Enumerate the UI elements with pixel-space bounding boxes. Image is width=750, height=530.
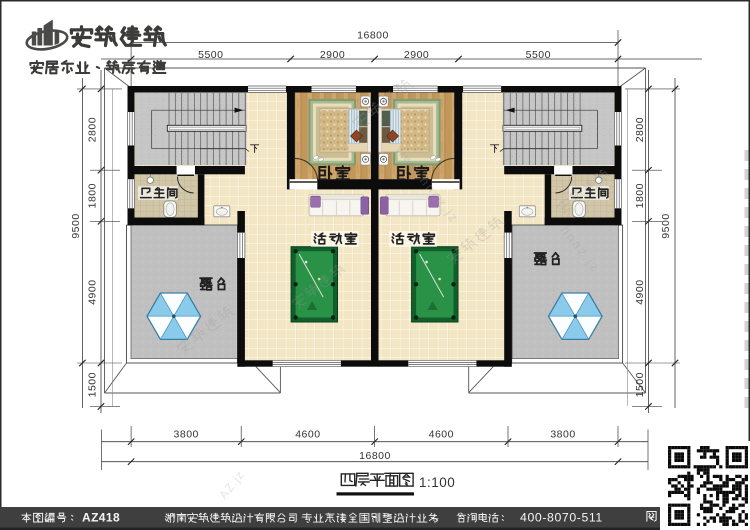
svg-text:4900: 4900 <box>86 279 98 304</box>
svg-text:1500: 1500 <box>634 372 646 397</box>
svg-text:16800: 16800 <box>359 450 391 462</box>
svg-text:2900: 2900 <box>320 49 345 61</box>
svg-text:400-8070-511: 400-8070-511 <box>520 511 603 525</box>
svg-text:9500: 9500 <box>70 213 82 238</box>
svg-text:4600: 4600 <box>429 428 454 440</box>
svg-text:9500: 9500 <box>660 213 672 238</box>
svg-text:2800: 2800 <box>86 117 98 142</box>
svg-text:16800: 16800 <box>357 30 389 42</box>
svg-text:1:100: 1:100 <box>419 475 455 490</box>
svg-text:2800: 2800 <box>634 117 646 142</box>
svg-text:3800: 3800 <box>174 428 199 440</box>
svg-text:AZ418: AZ418 <box>82 510 120 524</box>
svg-text:1500: 1500 <box>86 372 98 397</box>
svg-text:4600: 4600 <box>295 428 320 440</box>
svg-text:1800: 1800 <box>634 183 646 208</box>
svg-text:2900: 2900 <box>404 49 429 61</box>
svg-text:1800: 1800 <box>86 183 98 208</box>
svg-text:5500: 5500 <box>198 49 223 61</box>
svg-text:4900: 4900 <box>634 279 646 304</box>
svg-text:5500: 5500 <box>526 49 551 61</box>
svg-text:3800: 3800 <box>550 428 575 440</box>
